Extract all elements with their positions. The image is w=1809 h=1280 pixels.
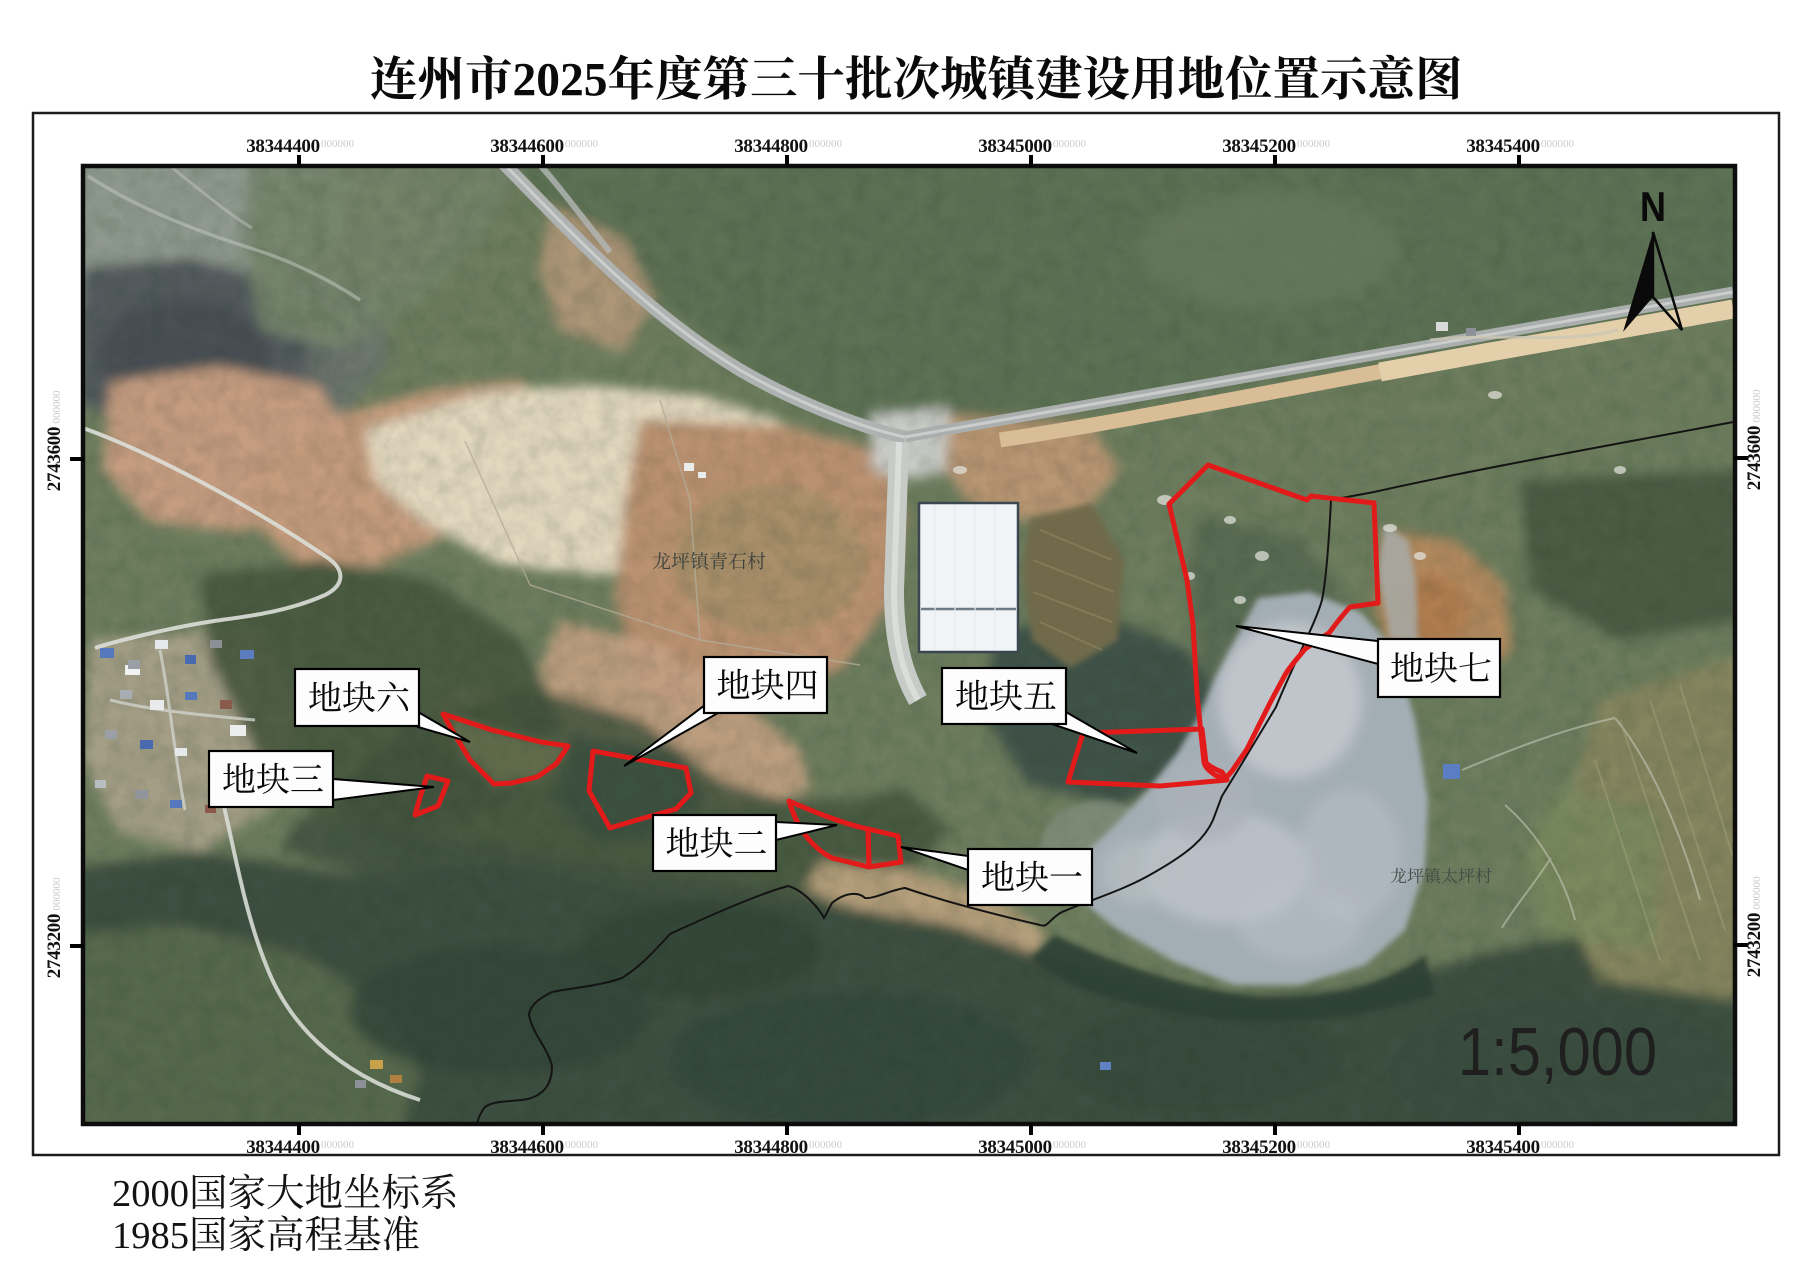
svg-text:2000: 2000 [112, 1173, 189, 1215]
svg-text:000000: 000000 [1053, 138, 1087, 150]
svg-text:38345200: 38345200 [1222, 136, 1296, 157]
svg-text:1:5,000: 1:5,000 [1458, 1014, 1657, 1090]
svg-text:2743200: 2743200 [44, 914, 65, 978]
svg-text:000000: 000000 [1541, 1139, 1575, 1151]
svg-text:000000: 000000 [1751, 389, 1763, 423]
svg-text:N: N [1640, 183, 1666, 230]
svg-text:000000: 000000 [1751, 876, 1763, 910]
svg-text:000000: 000000 [1297, 1139, 1331, 1151]
svg-text:38345000: 38345000 [978, 136, 1052, 157]
svg-text:000000: 000000 [1541, 138, 1575, 150]
svg-text:1985: 1985 [112, 1215, 189, 1257]
svg-text:2743600: 2743600 [1744, 426, 1765, 490]
svg-text:38344400: 38344400 [246, 1137, 320, 1158]
svg-text:2025: 2025 [513, 55, 608, 107]
svg-text:000000: 000000 [809, 1139, 843, 1151]
svg-text:000000: 000000 [1297, 138, 1331, 150]
svg-text:38344400: 38344400 [246, 136, 320, 157]
svg-text:38345400: 38345400 [1466, 136, 1540, 157]
svg-text:2743600: 2743600 [44, 427, 65, 491]
svg-text:000000: 000000 [1053, 1139, 1087, 1151]
svg-text:38344800: 38344800 [734, 136, 808, 157]
svg-text:000000: 000000 [321, 1139, 355, 1151]
svg-text:38344600: 38344600 [490, 1137, 564, 1158]
svg-text:2743200: 2743200 [1744, 913, 1765, 977]
svg-text:38344600: 38344600 [490, 136, 564, 157]
svg-text:38345400: 38345400 [1466, 1137, 1540, 1158]
svg-text:000000: 000000 [565, 138, 599, 150]
svg-text:000000: 000000 [321, 138, 355, 150]
svg-text:000000: 000000 [809, 138, 843, 150]
svg-text:38344800: 38344800 [734, 1137, 808, 1158]
svg-text:000000: 000000 [51, 877, 63, 911]
svg-text:38345000: 38345000 [978, 1137, 1052, 1158]
svg-text:000000: 000000 [51, 390, 63, 424]
svg-text:000000: 000000 [565, 1139, 599, 1151]
svg-text:38345200: 38345200 [1222, 1137, 1296, 1158]
